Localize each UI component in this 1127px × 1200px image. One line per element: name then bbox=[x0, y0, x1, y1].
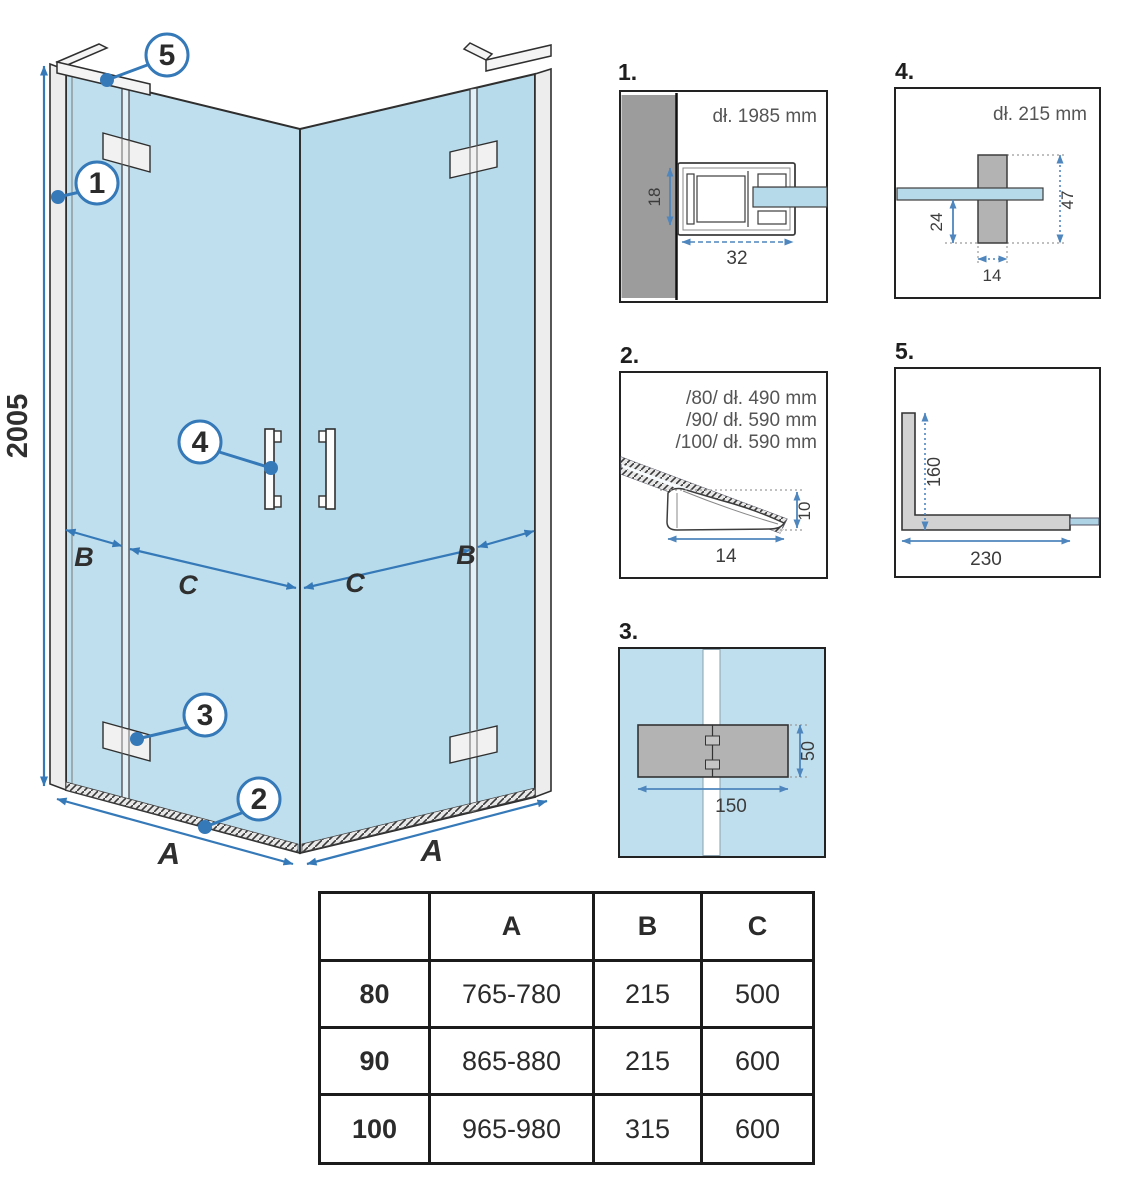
dim-c-right-label: C bbox=[345, 568, 365, 598]
dim-14: 14 bbox=[715, 546, 737, 567]
detail-1-label: 1. bbox=[618, 59, 637, 85]
callout-5: 5 bbox=[100, 34, 188, 87]
detail-4-length: dł. 215 mm bbox=[993, 104, 1087, 125]
dim-b-left-label: B bbox=[74, 542, 94, 572]
size-table-container: A B C 80 765-780 215 500 90 865-880 215 … bbox=[318, 891, 815, 1165]
detail-box-4: 4. dł. 215 mm 24 47 14 bbox=[895, 58, 1100, 298]
dim-150: 150 bbox=[715, 796, 747, 817]
detail-2-length-80: /80/ dł. 490 mm bbox=[686, 388, 817, 409]
table-row: 90 865-880 215 600 bbox=[320, 1028, 814, 1095]
dim-47: 47 bbox=[1058, 191, 1077, 210]
header-a: A bbox=[430, 893, 594, 961]
cell-c: 600 bbox=[702, 1028, 814, 1095]
detail-box-3: 3. 50 150 bbox=[619, 618, 825, 857]
table-header-row: A B C bbox=[320, 893, 814, 961]
dim-height: 2005 bbox=[2, 66, 44, 786]
dim-32: 32 bbox=[726, 248, 747, 269]
detail-3-label: 3. bbox=[619, 618, 638, 644]
callout-1-number: 1 bbox=[89, 167, 106, 200]
hinge-section bbox=[638, 725, 788, 777]
cell-c: 500 bbox=[702, 961, 814, 1028]
detail-4-label: 4. bbox=[895, 58, 914, 84]
glass-section bbox=[897, 188, 1043, 200]
cell-a: 965-980 bbox=[430, 1095, 594, 1164]
drawing-canvas: 2005 B C C B A A bbox=[0, 0, 1127, 900]
cell-size: 80 bbox=[320, 961, 430, 1028]
cell-b: 215 bbox=[594, 961, 702, 1028]
detail-2-label: 2. bbox=[620, 342, 639, 368]
dim-10: 10 bbox=[795, 502, 814, 521]
dim-height-label: 2005 bbox=[2, 394, 34, 459]
technical-drawing-page: 2005 B C C B A A bbox=[0, 0, 1127, 1200]
detail-1-length: dł. 1985 mm bbox=[712, 106, 817, 127]
header-c: C bbox=[702, 893, 814, 961]
detail-2-length-90: /90/ dł. 590 mm bbox=[686, 410, 817, 431]
header-b: B bbox=[594, 893, 702, 961]
header-size bbox=[320, 893, 430, 961]
dim-18: 18 bbox=[645, 188, 664, 207]
dim-a-left-label: A bbox=[157, 836, 180, 871]
cell-b: 315 bbox=[594, 1095, 702, 1164]
dim-a-right-label: A bbox=[420, 833, 443, 868]
table-row: 80 765-780 215 500 bbox=[320, 961, 814, 1028]
glass-edge-line bbox=[1070, 518, 1099, 525]
dim-160: 160 bbox=[924, 457, 944, 487]
dim-c-left-label: C bbox=[178, 570, 198, 600]
table-row: 100 965-980 315 600 bbox=[320, 1095, 814, 1164]
dim-14: 14 bbox=[983, 266, 1002, 285]
main-diagram: 2005 B C C B A A bbox=[2, 34, 551, 871]
left-door-gap bbox=[122, 86, 129, 807]
dim-50: 50 bbox=[798, 741, 818, 761]
cell-a: 865-880 bbox=[430, 1028, 594, 1095]
glass-section bbox=[753, 187, 827, 207]
detail-box-1: 1. dł. 1985 mm 18 32 bbox=[618, 59, 827, 302]
cell-size: 90 bbox=[320, 1028, 430, 1095]
cell-b: 215 bbox=[594, 1028, 702, 1095]
dim-24: 24 bbox=[927, 213, 946, 232]
right-wall-profile bbox=[535, 69, 551, 797]
size-table: A B C 80 765-780 215 500 90 865-880 215 … bbox=[318, 891, 815, 1165]
dim-230: 230 bbox=[970, 549, 1002, 570]
right-door-gap bbox=[470, 88, 477, 813]
dim-b-right-label: B bbox=[456, 540, 476, 570]
cell-c: 600 bbox=[702, 1095, 814, 1164]
callout-2-number: 2 bbox=[251, 783, 268, 816]
detail-box-2: 2. /80/ dł. 490 mm /90/ dł. 590 mm /100/… bbox=[620, 342, 827, 578]
detail-2-length-100: /100/ dł. 590 mm bbox=[675, 432, 817, 453]
top-bracket-right bbox=[464, 43, 551, 71]
detail-box-5: 5. 160 230 bbox=[895, 338, 1100, 577]
callout-5-number: 5 bbox=[159, 39, 176, 72]
callout-4-number: 4 bbox=[192, 426, 209, 459]
callout-3-number: 3 bbox=[197, 699, 214, 732]
detail-5-label: 5. bbox=[895, 338, 914, 364]
left-wall-profile bbox=[50, 64, 66, 790]
cell-size: 100 bbox=[320, 1095, 430, 1164]
cell-a: 765-780 bbox=[430, 961, 594, 1028]
